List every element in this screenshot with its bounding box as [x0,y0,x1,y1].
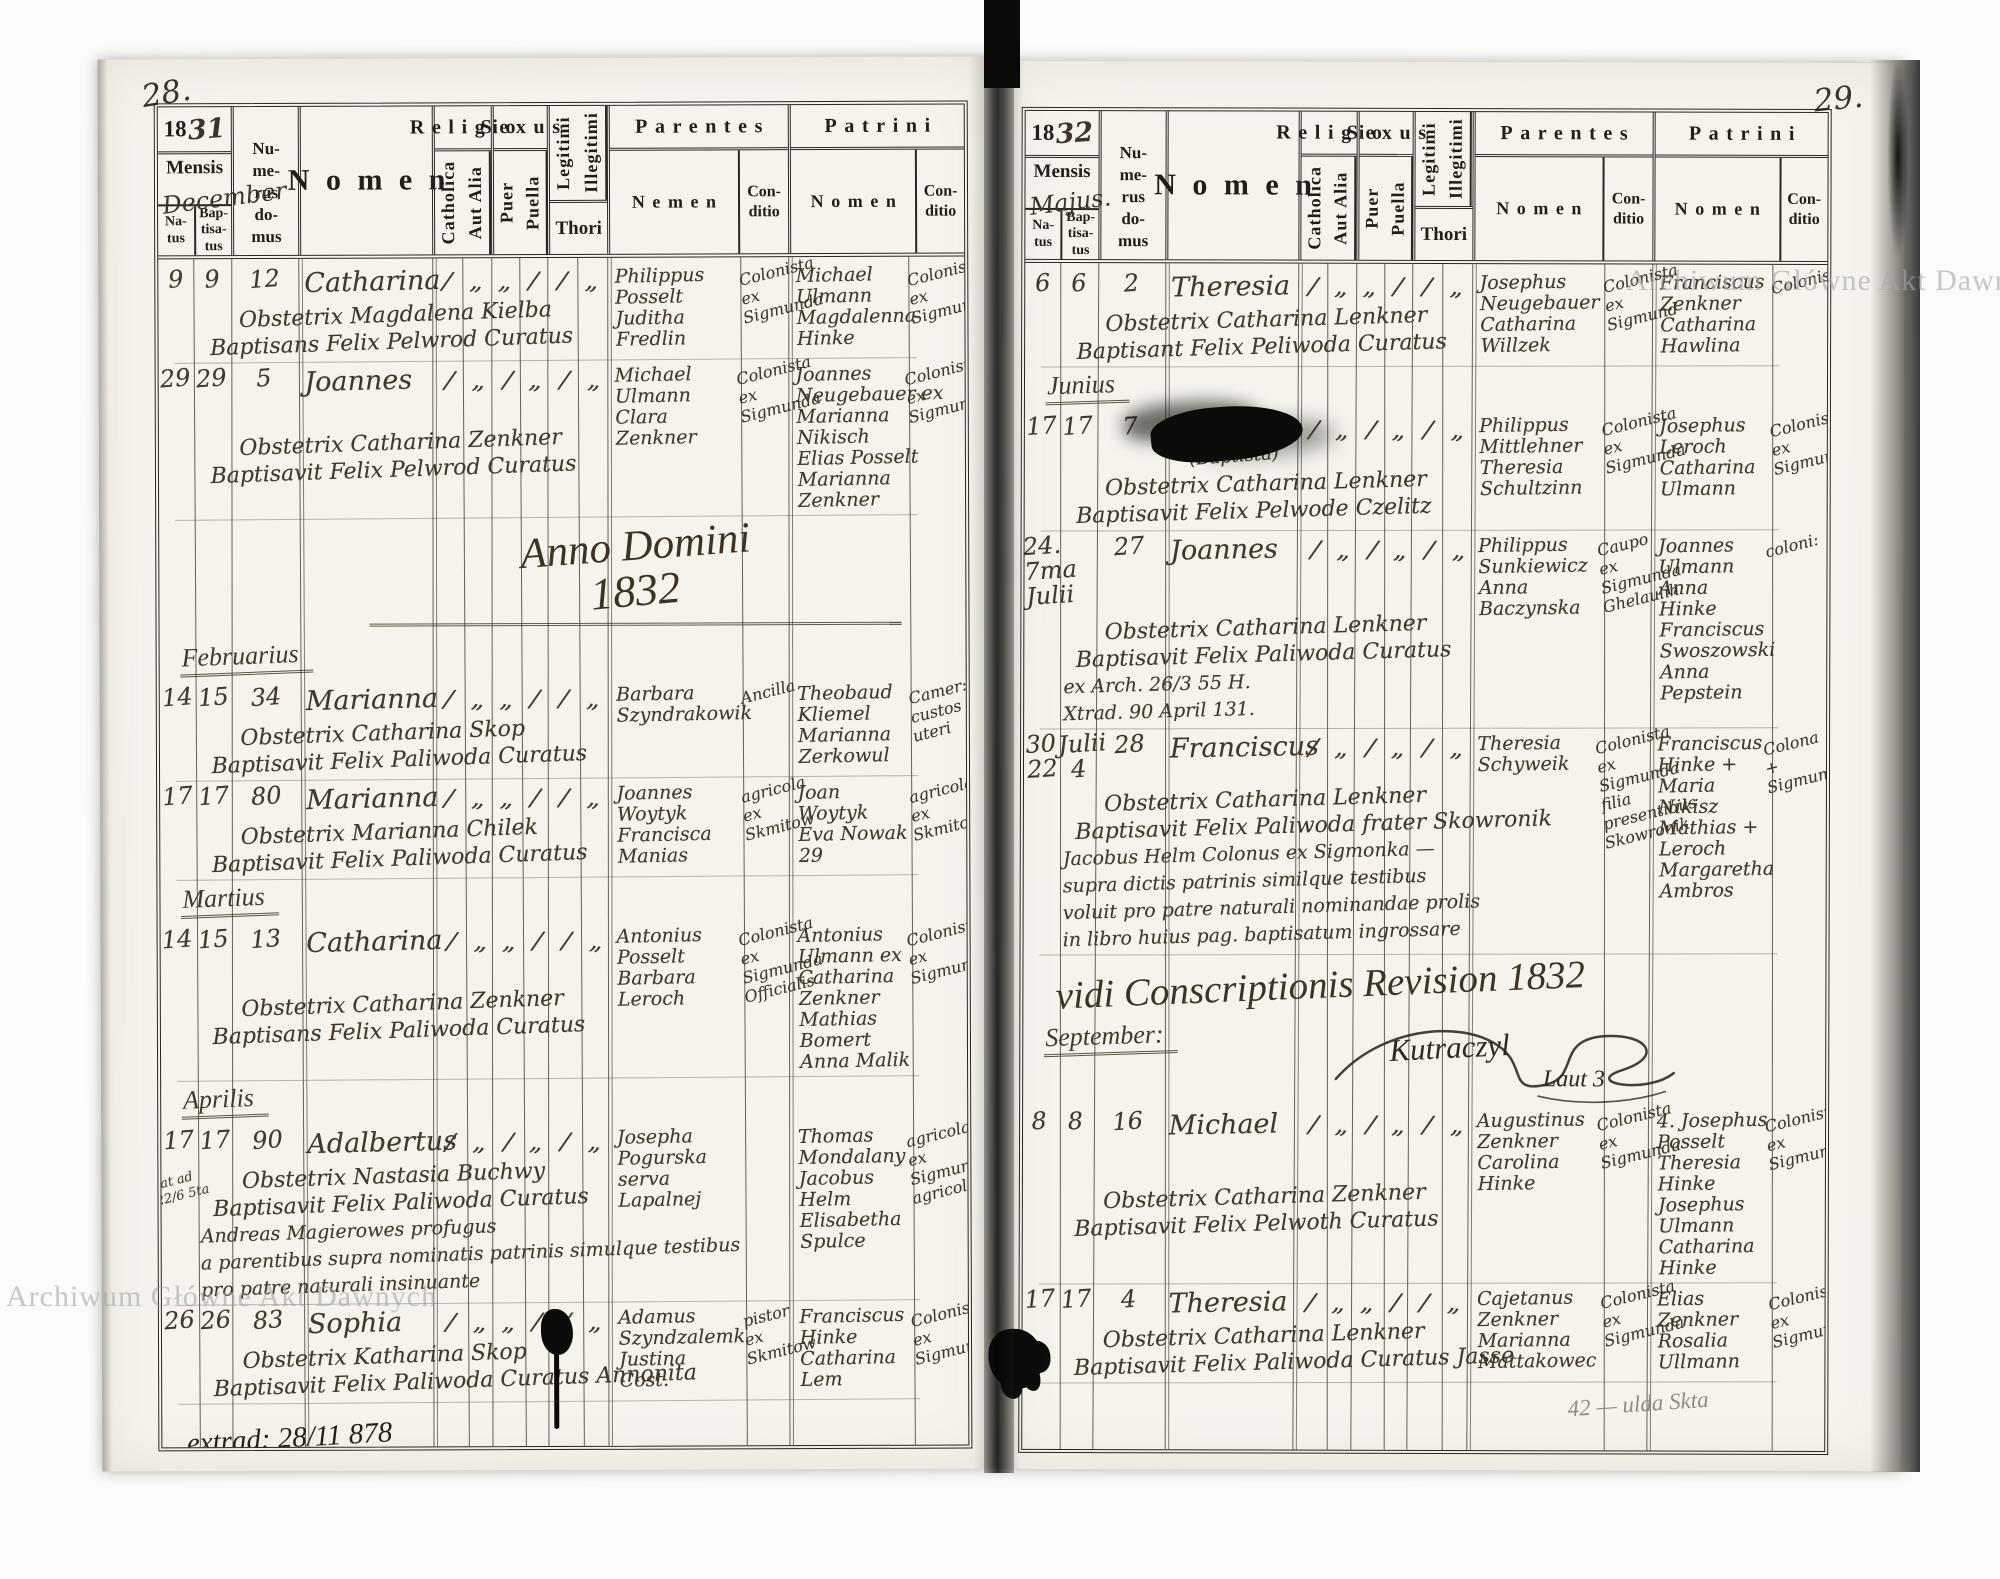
entry-name-text: Theresia [1171,270,1290,303]
entry-baptisatus-day: 9 [193,266,233,300]
patrini-conditio: ColonistaexSigmunda [901,361,968,513]
parentes-conditio-label: Con- ditio [1602,157,1652,260]
tick-legitimi: / [1408,1286,1442,1321]
entry-name-text: Joannes [304,364,413,398]
baptisatus-label: Bap- tisa- tus [1061,210,1099,259]
parentes-names-line: Barbara [617,966,742,990]
register-entry: 24. 7ma Julii27Joannes/„/„/„Obstetrix Ca… [1024,534,1826,724]
mensis-label: Mensis [1026,161,1099,183]
tick-catholica: / [432,682,466,717]
register-entry: 141534Marianna/„„//„Obstetrix Catharina … [160,683,966,775]
patrini-names-line: Rosalia [1658,1330,1770,1353]
parentes-names-line: Posselt [615,285,740,309]
patrini-conditio: agricolaexSkmitow [906,779,969,873]
parentes-names-line: Ulmann [615,384,740,408]
patrini-names: FranciscusHinkeCatharinaLem [791,1305,913,1396]
entry-baptisatus-day: 29 [192,365,234,428]
entry-name-text: Theresia [1168,1286,1287,1319]
patrini-names-line: Franciscus [799,1305,912,1328]
puella-label: Puella [1385,157,1413,260]
year-printed: 18 [164,116,187,142]
parentes-names-line: Lapalnej [618,1188,743,1212]
book-spine [984,0,1020,88]
entry-name: Joannes [1163,533,1297,611]
entry-baptisatus-day: Julii 4 [1058,730,1099,783]
archive-watermark: Archiwum Główne Akt Dawnych [6,1280,437,1314]
parentes-names-line: Neugebauer [1479,292,1604,315]
parentes-names-line: Clara [615,405,740,429]
patrini-conditio: ColonistaexSigmunda [1765,1286,1828,1380]
entry-natus-day: 17 [1023,413,1062,467]
patrini-names-line: Elias [1657,1288,1769,1311]
parentes-conditio-label: Con- ditio [738,150,789,253]
catholica-label: Catholica [435,151,462,254]
entry-natus-day: 29 [158,365,196,427]
entry-baptisatus-day [1057,533,1100,611]
entry-name: Michael [1162,1108,1296,1181]
parentes-names-line: Theresia [1477,732,1602,755]
entry-natus-day: 30 22 [1022,730,1061,783]
patrini-names-line: Marianna [796,405,909,428]
patrini-names: FranciscusHinke +MariaNikiszMathias +Ler… [1649,732,1772,950]
entry-name: Catharina [298,265,432,299]
entry-baptisatus-day: 15 [194,926,236,989]
patrini-names-line: Theobaud [797,682,910,705]
patrini-names-line: Hinke [797,327,910,350]
entry-house-number: 28 [1095,730,1165,785]
patrini-names: JoanWoytykEva Nowak29 [790,781,912,872]
register-entry: 171780Marianna/„„//„Obstetrix Marianna C… [160,782,966,874]
patrini-names-line: Franciscus [1657,732,1769,755]
parentes-names-line: Zenkner [616,426,741,450]
parentes-names-line: Manias [617,844,742,868]
handwritten-heading: vidi Conscriptionis Revision 1832 [1055,958,1777,1011]
parentes-names-line: Philippus [1479,414,1604,437]
patrini-names-line: Marianna [798,468,911,491]
register-entry: 171790Adalbertus/„/„/„Obstetrix Nastasia… [161,1126,968,1299]
patrini-conditio: ColonistaexSigmunda [904,262,968,356]
patrini-names-line: Leroch [1659,837,1771,860]
parentes-names-line: Hinke [1477,1172,1602,1195]
entry-name-text: Joannes [1169,534,1277,567]
column-header-patrini: Patrini Nomen Con- ditio [788,105,964,254]
parentes-names: JosephusNeugebauerCatharinaWillzek [1471,271,1605,362]
parentes-names-line: Mittlehner [1479,435,1604,458]
parentes-names: JosephaPogurskaservaLapalnej [609,1125,746,1298]
entry-natus-day: 17 [160,1127,198,1161]
patrini-label: Patrini [1656,113,1828,158]
patrini-names-line: Theresia [1657,1152,1769,1175]
column-header-mensis: 1832 Mensis Majus. Na- tus Bap- tisa- tu… [1025,111,1098,259]
page-edge-streak [1888,62,1908,252]
patrini-names-line: Joan [798,781,911,804]
inspector-signature: KutraczylLaut 3 [1264,1013,1745,1106]
register-entry: 17174Theresia/„„//„Obstetrix Catharina L… [1022,1287,1824,1378]
entry-notes: Obstetrix Nastasia BuchwyBaptisavit Feli… [197,1158,611,1298]
patrini-conditio: Camer:custosuteri [906,680,969,774]
entry-notes: Obstetrix Catharina ZenknerBaptisavit Fe… [1058,1179,1470,1278]
register-page-left: 28. 1831 Mensis December Na- tus Bap- ti… [98,56,1000,1471]
entry-natus-day: 8 [1022,1108,1060,1181]
handwritten-heading: Anno Domini1832 [369,521,901,627]
month-section-text: Junius [1045,369,1130,406]
patrini-label: Patrini [791,105,964,151]
patrini-names-line: Spulce [800,1230,913,1253]
catholica-label: Catholica [1301,157,1328,260]
tick-legitimi: / [546,264,580,299]
parentes-conditio: ColonistaexSigmunda [1597,1286,1654,1379]
entry-natus-day: 14 [159,684,197,718]
parentes-names-line: Mattakowec [1477,1350,1602,1373]
entry-house-number: 5 [230,364,301,429]
entry-notes: Obstetrix Catharina LenknerBaptisavit Fe… [1059,782,1471,949]
column-header-sexus: Sexus Puer Puella [491,106,548,254]
patrini-names-line: Jacobus [799,1167,912,1190]
patrini-names-line: Mathias + [1659,816,1771,839]
patrini-names-line: Catharina [1659,1236,1771,1259]
parentes-names-line: Schyweik [1477,753,1602,776]
patrini-names-line: Pepstein [1660,682,1772,705]
entry-notes: Obstetrix Marianna ChilekBaptisavit Feli… [196,814,610,873]
entry-name: Marianna [300,782,434,816]
parentes-names: PhilippusMittlehnerTheresiaSchultzinn [1471,414,1605,526]
thori-label: Thori [550,200,607,254]
month-section-label: Aprilis [181,1082,967,1119]
month-section-text: Martius [180,881,280,919]
entry-name-text: Catharina [304,265,441,299]
entry-baptisatus-day: 17 [1057,1286,1097,1319]
ink-blot [541,1309,573,1355]
aut-alia-label: Aut Alia [462,151,491,254]
tick-legitimi: / [547,781,581,816]
patrini-nomen-label: Nomen [1655,158,1779,261]
patrini-names-line: Elias Posselt [797,447,910,470]
entry-natus-day: 24. 7ma Julii [1022,533,1062,611]
legitimi-label: Legitimi [1416,112,1443,206]
patrini-names-line: Kliemel [798,703,911,726]
parentes-names-line: Antonius [616,924,741,948]
year-handwritten: 32 [1054,116,1094,149]
register-table: 1831 Mensis December Na- tus Bap- tisa- … [154,101,973,1452]
parentes-names-line: Sunkiewicz [1478,555,1603,578]
table-body: 662Theresia/„„//„Obstetrix Catharina Len… [1022,263,1827,1451]
table-body: 9912Catharina/„„//„Obstetrix Magdalena K… [158,257,968,1448]
parentes-nomen-label: Nomen [1475,157,1603,260]
patrini-names-line: Ulmann [1660,478,1772,501]
parentes-names-line: Theresia [1479,456,1604,479]
table-header: 1832 Mensis Majus. Na- tus Bap- tisa- tu… [1025,111,1827,265]
parentes-label: Parentes [1475,112,1653,157]
parentes-conditio: agricolaexSkmitow [737,780,795,874]
month-section-label: Junius [1045,370,1827,406]
parentes-names: PhilippusSunkiewiczAnnaBaczynska [1470,534,1605,724]
patrini-names-line: Ambros [1659,879,1771,902]
tick-legitimi: / [547,682,581,717]
register-table: 1832 Mensis Majus. Na- tus Bap- tisa- tu… [1018,107,1832,1455]
entry-name-text: Catharina [306,925,443,959]
parentes-names-line: Josepha [617,1125,742,1149]
column-header-parentes: Parentes Nemen Con- ditio [607,105,789,254]
patrini-conditio-line: coloni: [1763,530,1819,561]
sexus-label: Sexus [1360,112,1413,157]
entry-baptisatus-day: 17 [196,1127,236,1161]
patrini-conditio-label: Con- ditio [915,150,964,253]
parentes-names-line: Cajetanus [1477,1287,1602,1310]
patrini-names-line: Hinke [1658,1173,1770,1196]
tick-aut-alia: „ [460,264,493,299]
patrini-conditio: ColonistaexSigmunda [1761,1108,1827,1281]
entry-house-number: 12 [231,265,300,301]
thori-label: Thori [1416,206,1472,260]
parentes-names-line: Szyndzalemk [618,1326,743,1350]
parentes-names-line: Posselt [617,945,742,969]
column-header-parentes: Parentes Nomen Con- ditio [1472,112,1653,260]
entry-house-number: 4 [1095,1285,1163,1320]
patrini-names-line: Hawlina [1661,335,1773,358]
entry-house-number: 2 [1097,269,1165,304]
patrini-names-line: Joannes [1658,535,1770,558]
tick-catholica: / [434,1305,468,1340]
entry-baptisatus-day: 17 [194,783,234,817]
month-section-label: Martius [181,881,967,918]
patrini-names: ThomasMondalanyJacobusHelmElisabethaSpul… [790,1125,914,1297]
patrini-names: AntoniusUlmann exCatharinaZenknerMathias… [789,924,912,1073]
entry-name: Catharina [300,925,435,988]
patrini-names-line: Posselt [1657,1131,1769,1154]
patrini-names-line: Josephus [1659,415,1771,438]
parentes-conditio: ColonistaexSigmunda [736,263,794,357]
illegitimi-label: Illegitimi [1443,112,1472,206]
signature-subtext: Laut 3 [1543,1066,1605,1093]
entry-notes: Obstetrix Catharina LenknerBaptisavit Fe… [1060,466,1472,525]
puer-label: Puer [494,151,520,254]
entry-name: Joannes(Baptista) [1164,413,1298,467]
register-entry: 29295Joannes/„/„/„Obstetrix Catharina Ze… [159,364,966,514]
patrini-names: JoannesUlmannAnnaHinkeFranciscusSwoszows… [1650,535,1772,724]
entry-name: Theresia [1162,1286,1296,1319]
entry-house-number: 16 [1094,1107,1165,1182]
signature-text: Kutraczyl [1388,1027,1510,1069]
register-entry: 262683Sophia/„„//„Obstetrix Katharina Sk… [162,1306,968,1398]
parentes-names-line: Szyndrakowik [616,703,741,727]
tick-catholica: / [432,781,466,816]
patrini-names-line: Zenkner [1657,1309,1769,1332]
entry-name: Franciscus [1163,731,1297,784]
year-label: 1831 [158,107,231,154]
patrini-names: JoannesNeugebauer exMariannaNikischElias… [788,363,911,512]
parentes-names-line: Anna [1478,576,1603,599]
entry-notes: Obstetrix Catharina ZenknerBaptisans Fel… [196,986,610,1074]
parentes-names-line: Fredlin [616,327,741,351]
parentes-names-line: Catharina [1480,313,1605,336]
patrini-names-line: 29 [799,844,912,867]
tick-illegitimi: „ [1438,413,1475,469]
parentes-names: BarbaraSzyndrakowik [608,682,743,774]
register-entry: 17177Joannes(Baptista)/„/„/„Obstetrix Ca… [1025,414,1827,526]
patrini-names-line: Catharina [798,966,911,989]
mensis-label: Mensis [158,157,231,179]
patrini-names-line: Ulmann [1658,556,1770,579]
parentes-names: AdamusSzyndzalemkJustinaCost. [610,1305,745,1397]
entry-natus-day: 17 [159,783,197,817]
column-header-legitimi: Legitimi Illegitimi Thori [1413,112,1473,260]
patrini-names-line: Magdalenna [797,306,910,329]
register-entry: 9912Catharina/„„//„Obstetrix Magdalena K… [158,265,964,357]
patrini-names-line: Catharina [1660,457,1772,480]
patrini-names-line: Elisabetha [800,1209,913,1232]
parentes-names-line: Carolina [1477,1151,1602,1174]
patrini-conditio-label: Con- ditio [1779,158,1828,261]
tick-catholica: / [433,1125,467,1160]
entry-name-text: Michael [1168,1108,1278,1141]
column-header-legitimi: Legitimi Illegitimi Thori [547,106,607,254]
parentes-names: MichaelUlmannClaraZenkner [606,363,742,513]
tick-legitimi: / [549,1125,583,1160]
tick-aut-alia: „ [463,1125,496,1160]
parentes-names-line: Justina [619,1347,744,1371]
aut-alia-label: Aut Alia [1328,157,1357,260]
column-header-sexus: Sexus Puer Puella [1357,112,1414,260]
year-handwritten: 31 [187,112,227,146]
patrini-names-line: Ulmann [1658,1215,1770,1238]
patrini-names-line: Zenkner [799,987,912,1010]
patrini-names: 4. JosephusPosseltTheresiaHinkeJosephusU… [1649,1110,1771,1280]
patrini-names: EliasZenknerRosaliaUllmann [1649,1288,1770,1379]
entry-natus-day: 17 [1022,1286,1059,1319]
parentes-conditio: ColonistaexSigmunda [1598,413,1657,527]
patrini-names-line: 4. Josephus [1657,1110,1769,1133]
column-header-mensis: 1831 Mensis December Na- tus Bap- tisa- … [158,107,232,255]
patrini-names: JosephusLerochCatharinaUlmann [1651,415,1772,527]
patrini-conditio: ColonistaexSigmunda [1766,413,1827,528]
parentes-names-line: Joannes [616,781,741,805]
parentes-names-line: Leroch [617,987,742,1011]
entries: 9912Catharina/„„//„Obstetrix Magdalena K… [158,257,968,1448]
parentes-conditio: pistorexSkmitow [739,1304,797,1398]
entry-notes: Obstetrix Catharina ZenknerBaptisavit Fe… [194,425,608,513]
patrini-names-line: Mondalany [798,1146,911,1169]
parentes-names-line: Michael [614,363,739,387]
year-label: 1832 [1026,111,1099,158]
entry-baptisatus-day: 6 [1060,270,1100,303]
parentes-names-line: Woytyk [617,802,742,826]
patrini-names-line: Michael [796,264,909,287]
parentes-names-line: Augustinus [1476,1109,1601,1132]
entry-natus-day: 6 [1024,270,1061,303]
patrini-conditio: ColonistaexSigmunda [903,922,968,1074]
month-section-label: Februarius [180,639,966,676]
entry-natus-day: 9 [158,266,195,300]
month-section-text: Aprilis [181,1082,269,1119]
entry-name: Marianna [300,683,434,717]
tick-catholica: / [430,264,464,299]
entry-notes: Obstetrix Magdalena KielbaBaptisans Feli… [194,297,608,356]
entry-notes: Obstetrix Catharina SkopBaptisavit Felix… [195,715,609,774]
parentes-names-line: Willzek [1480,334,1605,357]
tick-aut-alia: „ [462,781,495,816]
patrini-names-line: Anna [1659,577,1771,600]
entry-name: Adalbertus [301,1126,435,1160]
entry-notes: Obstetrix Catharina LenknerBaptisavit Fe… [1059,610,1471,723]
patrini-names-line: Marianna [798,724,911,747]
parentes-names: TheresiaSchyweik [1469,732,1605,950]
parentes-nomen-label: Nemen [610,150,738,253]
parentes-names: CajetanusZenknerMariannaMattakowec [1469,1287,1603,1378]
tick-aut-alia: „ [462,682,495,717]
patrini-names-line: Catharina [800,1347,913,1370]
patrini-names-line: Eva Nowak [798,823,911,846]
pencil-note: 42 — ulda Skta [1567,1379,1825,1422]
parentes-conditio-line: Ancilla [738,678,788,708]
legitimi-label: Legitimi [550,106,578,200]
patrini-names-line: Ullmann [1658,1351,1770,1374]
register-entry: 141513Catharina/„„//„Obstetrix Catharina… [161,925,968,1075]
parentes-names-line: Schultzinn [1480,477,1605,500]
parentes-names-line: Pogurska [617,1146,742,1170]
entry-house-number: 27 [1095,532,1166,612]
patrini-names-line: Nikisz [1658,795,1770,818]
patrini-names: TheobaudKliemelMariannaZerkowul [789,682,911,773]
parentes-names: AntoniusPosseltBarbaraLeroch [608,924,744,1074]
tick-legitimi: / [1411,270,1445,305]
patrini-names-line: Margaretha [1659,858,1771,881]
entry-natus-day: 14 [159,926,199,988]
entries: 662Theresia/„„//„Obstetrix Catharina Len… [1022,263,1827,1451]
entry-name: Theresia [1165,270,1299,303]
entry-house-number: 13 [232,925,303,990]
parentes-names-line: Zenkner [1477,1130,1602,1153]
patrini-names: MichaelUlmannMagdalennaHinke [788,264,910,355]
parentes-conditio: Ancilla [737,681,795,775]
parentes-names-line: Philippus [614,264,739,288]
parentes-names-line: serva [618,1167,743,1191]
patrini-names-line: Josephus [1658,1194,1770,1217]
patrini-nomen-label: Nomen [791,150,915,253]
entry-baptisatus-day: 15 [194,684,234,718]
entry-name-text: Marianna [306,683,439,717]
month-section-text: Februarius [179,639,313,678]
book-gutter-shadow [984,55,1014,1473]
patrini-names-line: Maria [1658,774,1770,797]
patrini-names-line: Anna [1660,661,1772,684]
parentes-names-line: Juditha [615,306,740,330]
register-entry: 8816Michael/„/„/„Obstetrix Catharina Zen… [1023,1109,1825,1279]
illegitimi-label: Illegitimi [577,106,607,200]
parentes-label: Parentes [610,105,788,151]
patrini-conditio: ColonistaexSigmunda [908,1303,969,1397]
entry-house-number: 34 [232,683,301,719]
patrini-names-line: Anna Malik [800,1050,913,1073]
parentes-names: PhilippusPosseltJudithaFredlin [606,264,741,356]
parentes-names: JoannesWoytykFranciscaManias [608,781,743,873]
puella-label: Puella [519,151,547,254]
patrini-names-line: Hinke + [1658,753,1770,776]
tick-aut-alia: „ [464,1305,497,1340]
sexus-label: Sexus [494,106,548,151]
table-header: 1831 Mensis December Na- tus Bap- tisa- … [158,105,965,260]
parentes-names-line: Francisca [617,823,742,847]
patrini-names-line: Zerkowul [798,745,911,768]
entry-name-text: Marianna [306,782,439,816]
entry-house-number: 80 [232,782,301,818]
entry-notes: Obstetrix Catharina LenknerBaptisant Fel… [1060,302,1472,361]
entry-house-number: 90 [234,1126,303,1162]
patrini-names-line: Mathias [799,1008,912,1031]
parentes-names: AugustinusZenknerCarolinaHinke [1468,1109,1603,1279]
year-printed: 18 [1031,120,1054,146]
patrini-names-line: Swoszowski [1660,640,1772,663]
entry-baptisatus-day: 8 [1056,1108,1098,1181]
